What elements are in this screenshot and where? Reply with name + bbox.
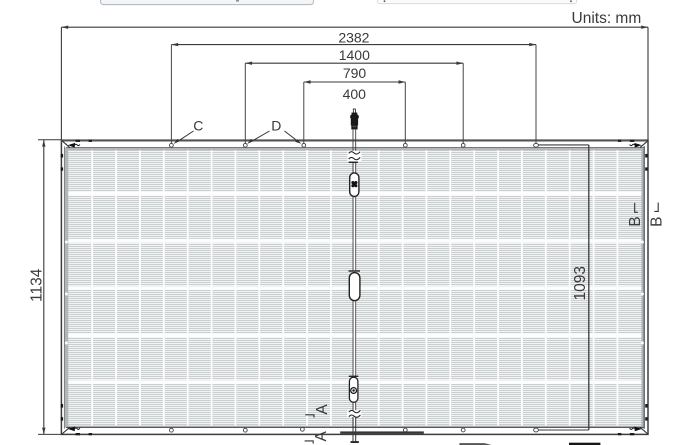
svg-text:C: C: [193, 117, 203, 133]
svg-text:400: 400: [343, 86, 367, 102]
svg-text:D: D: [271, 117, 281, 133]
svg-text:790: 790: [343, 65, 367, 81]
svg-text:B: B: [627, 216, 644, 226]
svg-text:A: A: [314, 404, 331, 415]
svg-text:1093: 1093: [572, 266, 589, 300]
svg-text:B: B: [649, 217, 666, 227]
svg-text:Units: mm: Units: mm: [572, 10, 642, 27]
svg-text:1134: 1134: [29, 268, 46, 302]
svg-text:A: A: [313, 430, 330, 441]
svg-text:1400: 1400: [339, 47, 370, 63]
svg-text:2382: 2382: [338, 30, 369, 46]
